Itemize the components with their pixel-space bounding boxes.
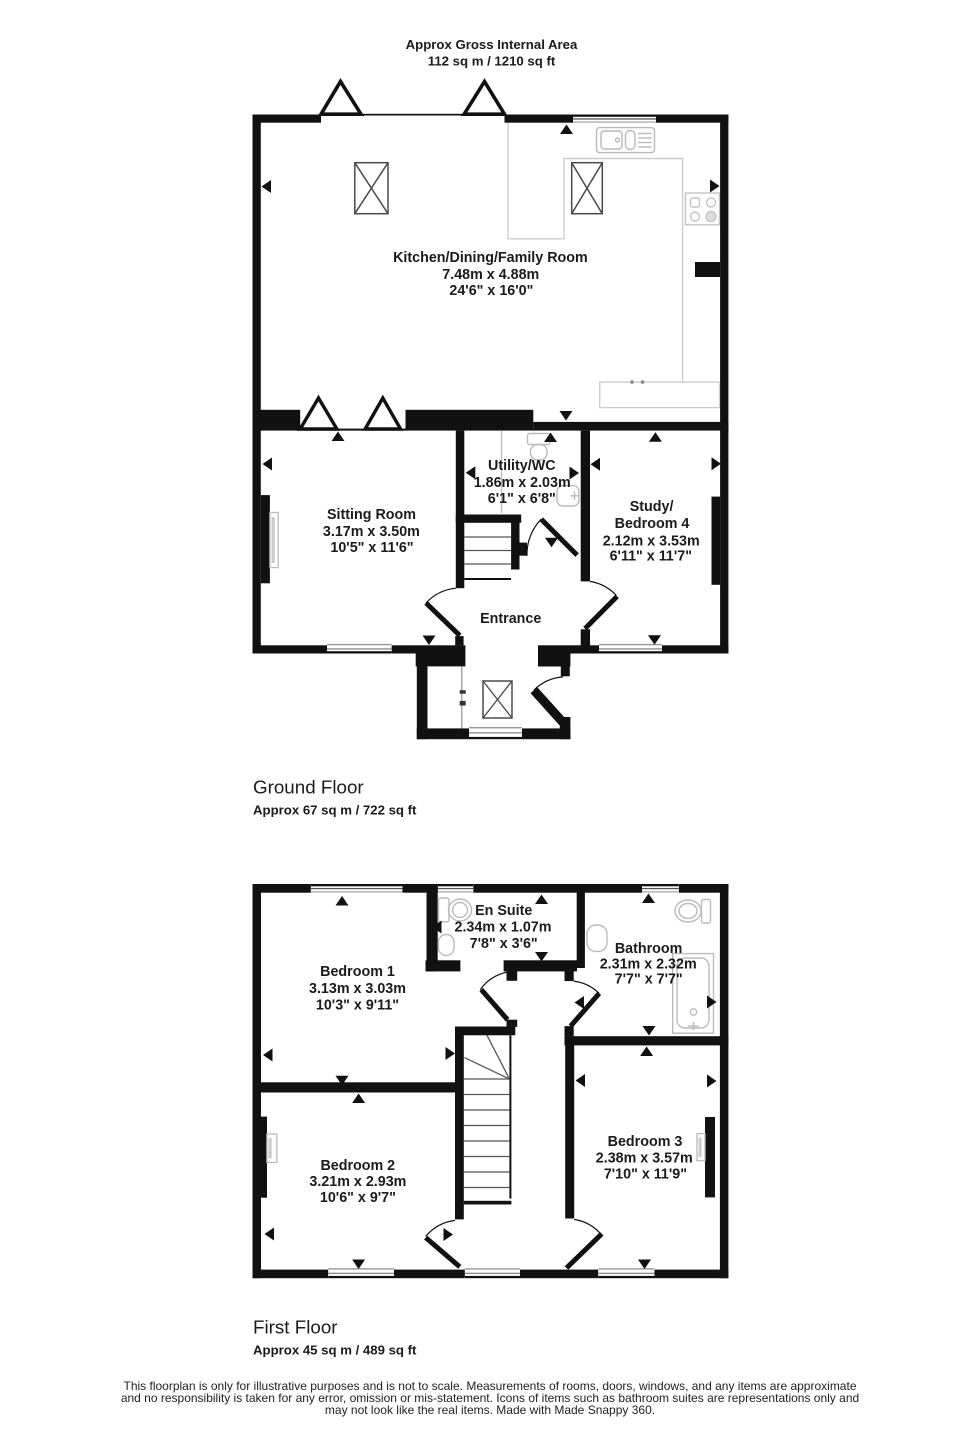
- svg-text:Approx 45 sq m / 489 sq ft: Approx 45 sq m / 489 sq ft: [253, 1343, 417, 1358]
- svg-text:24'6" x 16'0": 24'6" x 16'0": [449, 283, 533, 299]
- svg-text:Sitting Room: Sitting Room: [327, 507, 416, 523]
- svg-text:2.31m x 2.32m: 2.31m x 2.32m: [600, 957, 697, 973]
- svg-text:3.17m x 3.50m: 3.17m x 3.50m: [323, 524, 420, 540]
- svg-text:Entrance: Entrance: [480, 611, 541, 627]
- svg-text:Approx 67 sq m / 722 sq ft: Approx 67 sq m / 722 sq ft: [253, 803, 417, 818]
- svg-text:En Suite: En Suite: [475, 903, 532, 919]
- svg-text:2.12m x 3.53m: 2.12m x 3.53m: [603, 534, 700, 550]
- svg-text:Bedroom 3: Bedroom 3: [608, 1134, 683, 1150]
- svg-text:112 sq m / 1210 sq ft: 112 sq m / 1210 sq ft: [428, 54, 556, 69]
- svg-text:2.38m x 3.57m: 2.38m x 3.57m: [596, 1150, 693, 1166]
- svg-text:Kitchen/Dining/Family Room: Kitchen/Dining/Family Room: [393, 250, 588, 266]
- svg-text:First Floor: First Floor: [253, 1317, 338, 1338]
- svg-text:10'5" x 11'6": 10'5" x 11'6": [330, 540, 413, 556]
- svg-text:2.34m x 1.07m: 2.34m x 1.07m: [455, 920, 552, 936]
- svg-text:Bedroom 4: Bedroom 4: [615, 516, 690, 532]
- svg-text:7.48m x 4.88m: 7.48m x 4.88m: [442, 267, 539, 283]
- svg-text:Ground Floor: Ground Floor: [253, 777, 364, 798]
- svg-text:7'7" x 7'7": 7'7" x 7'7": [615, 972, 683, 988]
- svg-text:6'11" x 11'7": 6'11" x 11'7": [610, 549, 692, 565]
- svg-text:7'10" x 11'9": 7'10" x 11'9": [604, 1167, 687, 1183]
- svg-text:3.13m x 3.03m: 3.13m x 3.03m: [309, 981, 406, 997]
- svg-text:Bathroom: Bathroom: [615, 941, 683, 957]
- svg-text:3.21m x 2.93m: 3.21m x 2.93m: [309, 1174, 406, 1190]
- svg-text:Approx Gross Internal Area: Approx Gross Internal Area: [406, 37, 578, 52]
- svg-text:may not look like the real ite: may not look like the real items. Made w…: [325, 1403, 655, 1417]
- svg-text:10'6" x 9'7": 10'6" x 9'7": [320, 1190, 396, 1206]
- svg-text:6'1" x 6'8": 6'1" x 6'8": [488, 491, 556, 507]
- svg-text:1.86m x 2.03m: 1.86m x 2.03m: [474, 475, 571, 491]
- svg-text:Utility/WC: Utility/WC: [488, 458, 556, 474]
- svg-text:7'8" x 3'6": 7'8" x 3'6": [470, 936, 538, 952]
- svg-text:Bedroom 2: Bedroom 2: [320, 1158, 395, 1174]
- svg-text:Study/: Study/: [630, 499, 674, 515]
- svg-text:10'3" x 9'11": 10'3" x 9'11": [316, 998, 399, 1014]
- svg-text:Bedroom 1: Bedroom 1: [320, 964, 395, 980]
